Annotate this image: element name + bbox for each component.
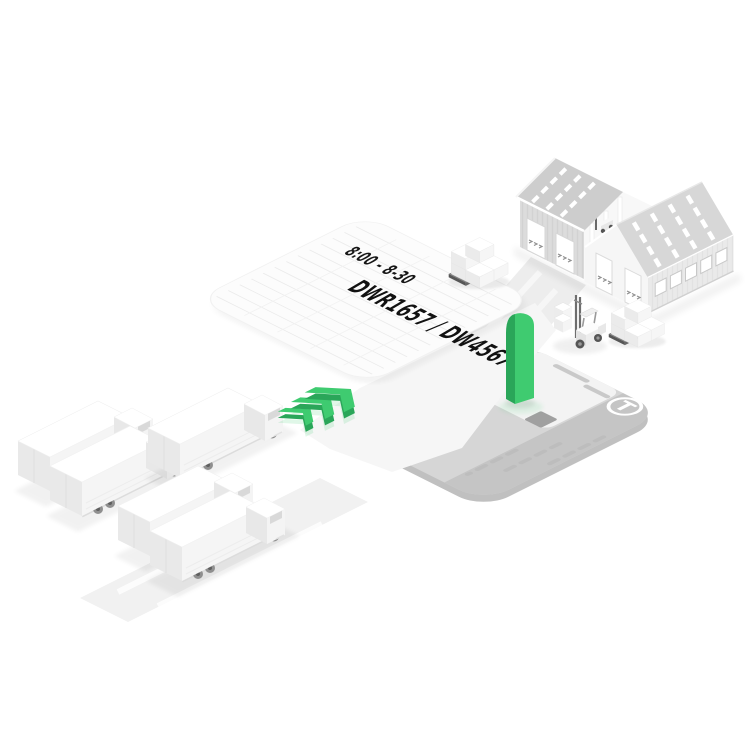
pallet-stack-icon — [449, 237, 510, 289]
scene-canvas: T 8:00 - 8-30 DWR1657 / DW45676 — [0, 0, 750, 750]
isometric-logistics-illustration: T 8:00 - 8-30 DWR1657 / DW45676 — [0, 0, 750, 750]
forklift-icon — [553, 295, 607, 354]
dock-door — [596, 253, 612, 295]
